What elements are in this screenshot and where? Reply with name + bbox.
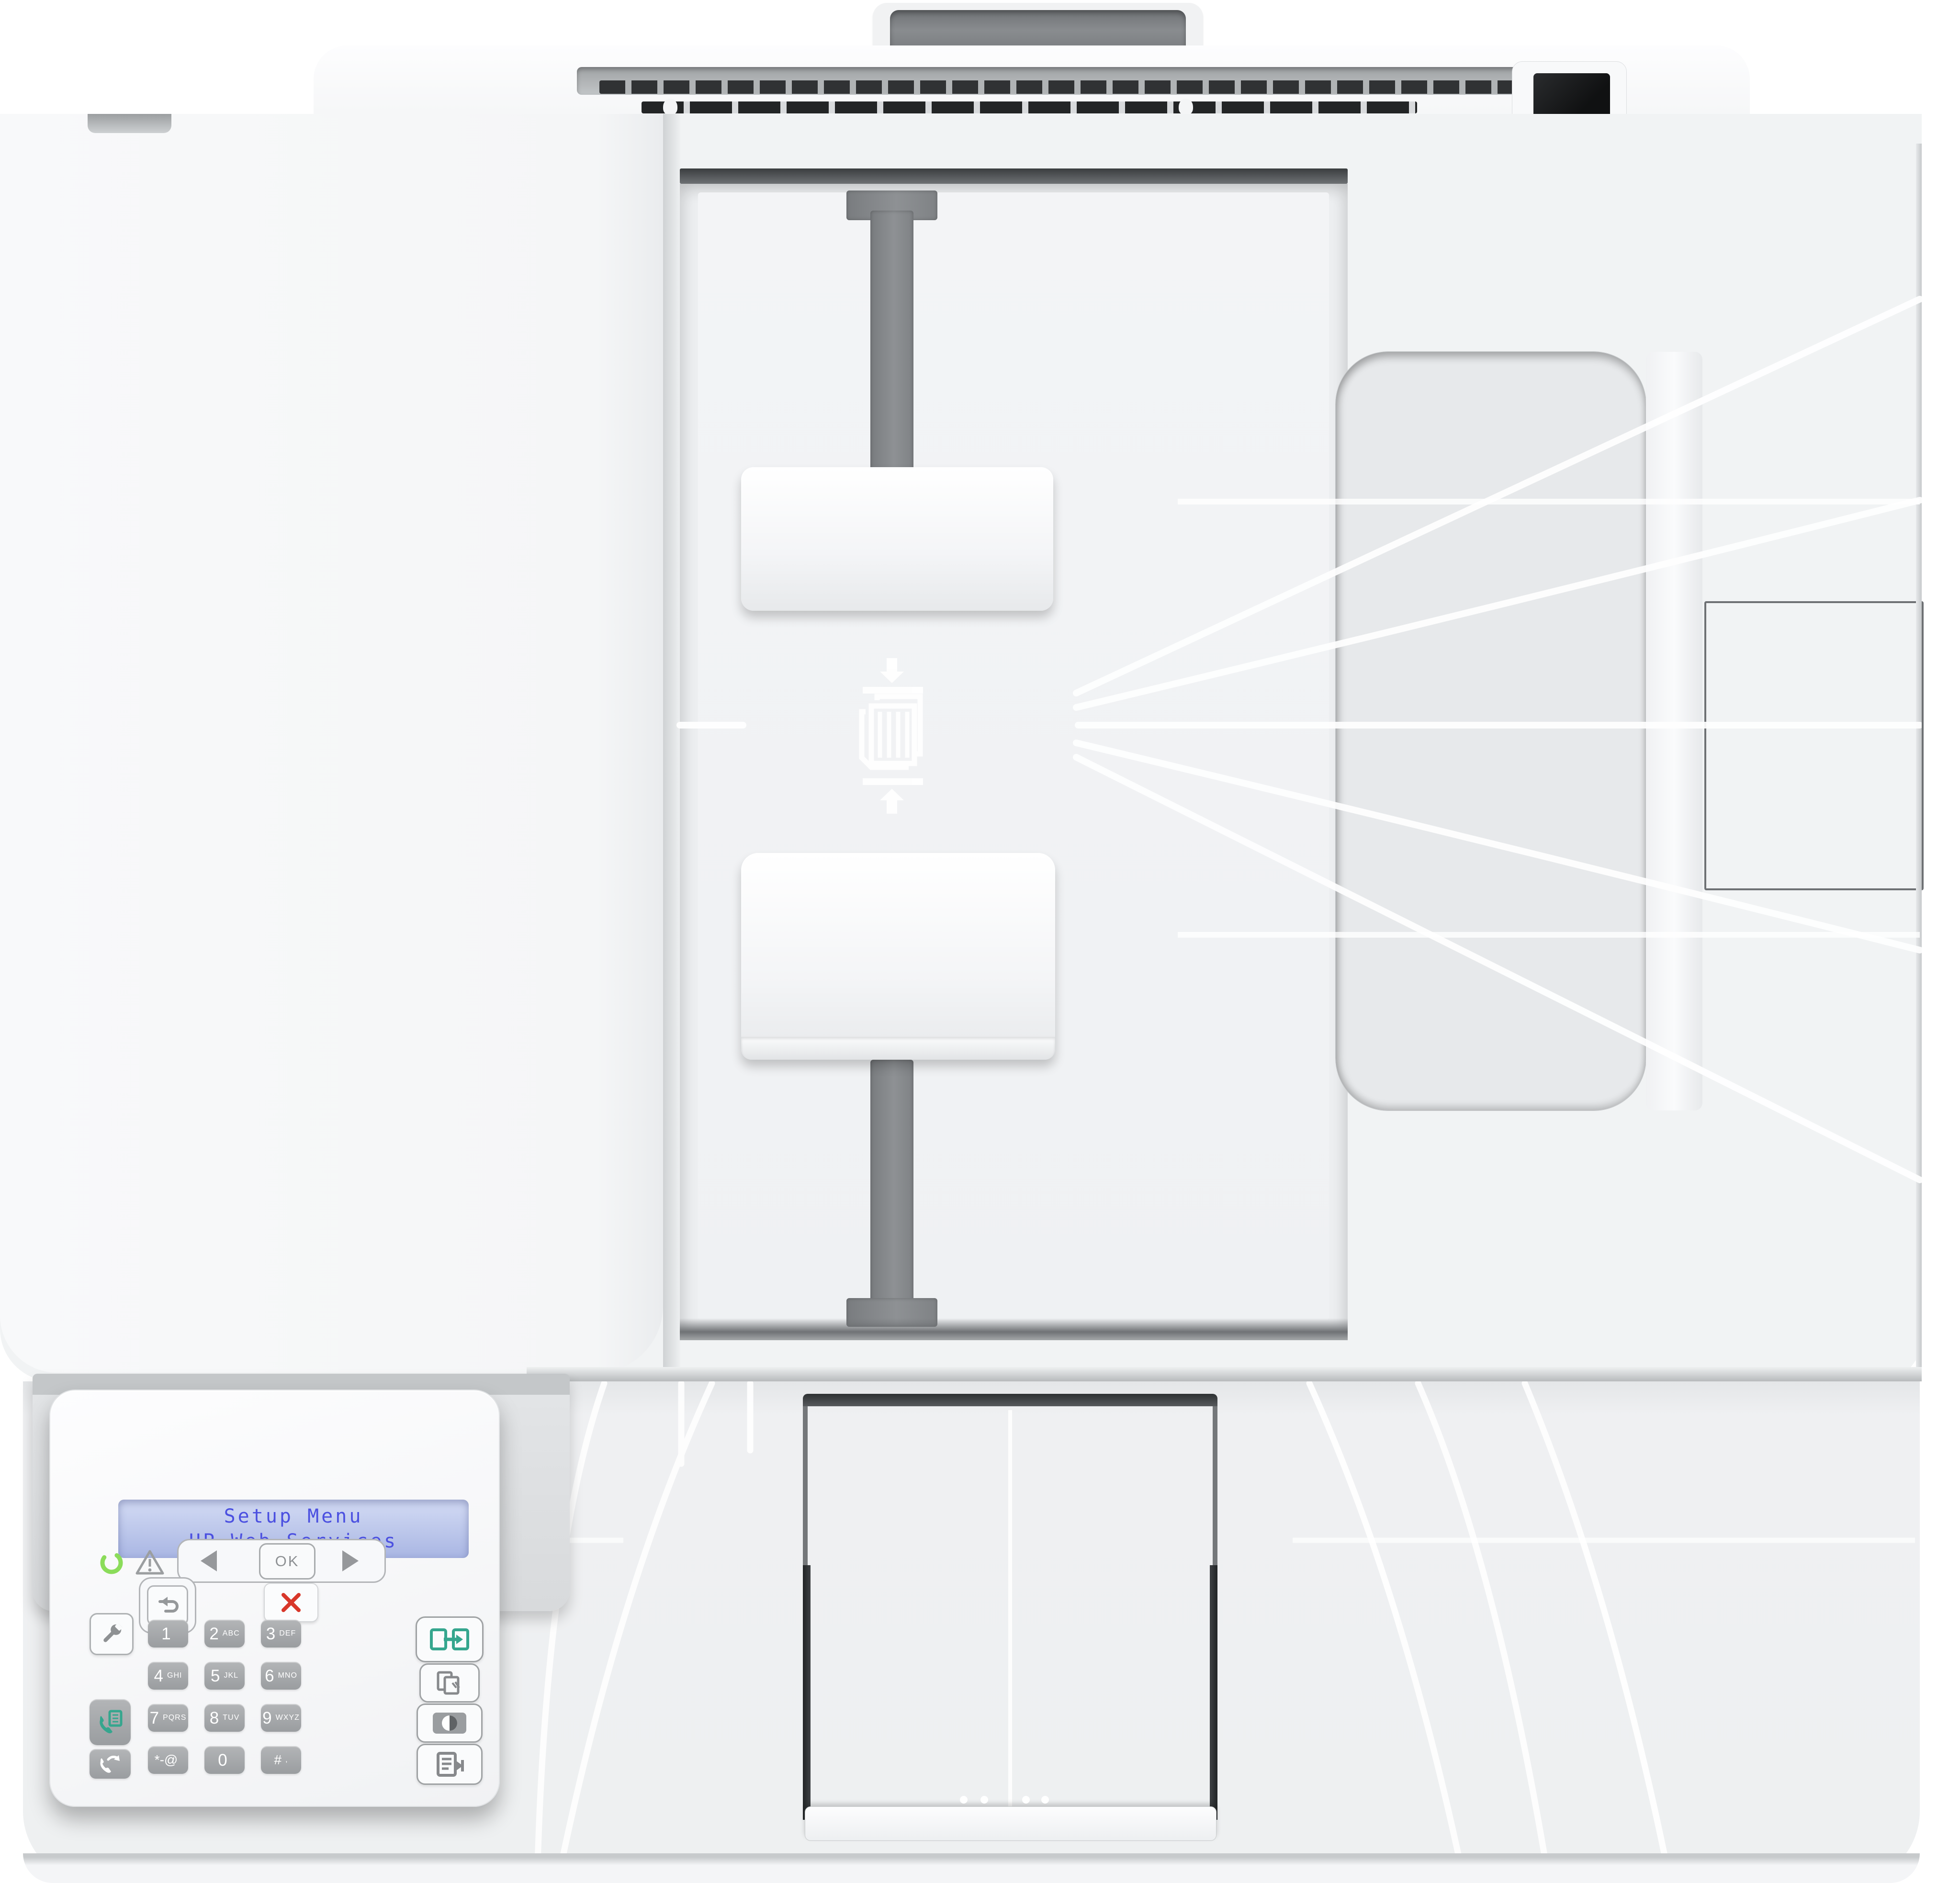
paper-stop-dot — [980, 1796, 988, 1804]
fax-icon — [96, 1708, 124, 1736]
copy-settings-button[interactable] — [417, 1744, 483, 1785]
copies-icon — [434, 1670, 465, 1695]
setup-button[interactable] — [90, 1613, 134, 1655]
deck-front-edge — [527, 1367, 1922, 1381]
printer-top-view: Setup Menu HP Web Services OK — [0, 0, 1960, 1883]
lid-grip-notch[interactable] — [88, 114, 171, 133]
redial-icon — [98, 1754, 123, 1774]
key-5[interactable]: 5JKL — [204, 1662, 245, 1690]
lcd-line1: Setup Menu — [224, 1505, 363, 1527]
duplex-copy-icon — [429, 1626, 470, 1653]
key-hash[interactable]: #, — [261, 1746, 301, 1774]
ok-label: OK — [275, 1553, 300, 1570]
ready-led — [98, 1549, 125, 1576]
key-2[interactable]: 2ABC — [204, 1620, 245, 1648]
paper-stop-center-seam — [1008, 1410, 1012, 1806]
flatbed-lid[interactable] — [0, 114, 663, 1373]
key-9[interactable]: 9WXYZ — [261, 1704, 301, 1732]
copy-settings-icon — [434, 1751, 465, 1777]
ok-button[interactable]: OK — [259, 1543, 315, 1580]
copies-button[interactable] — [419, 1663, 480, 1703]
key-1[interactable]: 1 — [148, 1620, 188, 1648]
control-panel: Setup Menu HP Web Services OK — [49, 1390, 500, 1807]
key-3[interactable]: 3DEF — [261, 1620, 301, 1648]
key-star[interactable]: *-@ — [148, 1746, 188, 1774]
key-6[interactable]: 6MNO — [261, 1662, 301, 1690]
arrow-right-button[interactable] — [342, 1550, 359, 1571]
key-4[interactable]: 4GHI — [148, 1662, 188, 1690]
key-8[interactable]: 8TUV — [204, 1704, 245, 1732]
paper-stop-rail — [1213, 1406, 1217, 1565]
paper-stop-rail — [803, 1565, 811, 1820]
contrast-icon — [431, 1711, 468, 1735]
two-sided-copy-button[interactable] — [416, 1616, 484, 1662]
setup-wrench-icon — [98, 1621, 125, 1648]
back-icon — [155, 1595, 180, 1616]
key-0[interactable]: 0 — [204, 1746, 245, 1774]
adf-lid-handle[interactable] — [873, 3, 1203, 47]
paper-stop-dot — [1041, 1796, 1049, 1804]
key-7[interactable]: 7PQRS — [148, 1704, 188, 1732]
deck-decor-lines — [670, 182, 1922, 1345]
vent-slots-row2 — [642, 101, 1417, 113]
output-paper-stop[interactable] — [803, 1394, 1217, 1879]
nav-cluster: OK — [177, 1539, 386, 1583]
adf-lid-handle-recess — [890, 10, 1186, 47]
paper-stop-flip-edge[interactable] — [805, 1806, 1217, 1841]
vent-slots-row1 — [599, 80, 1578, 94]
vent-divider-left — [663, 99, 677, 115]
rear-port — [1533, 73, 1610, 119]
fax-button[interactable] — [90, 1699, 131, 1745]
redial-button[interactable] — [90, 1749, 131, 1779]
warning-icon — [135, 1548, 165, 1576]
cancel-x-icon — [280, 1592, 302, 1614]
contrast-button[interactable] — [417, 1704, 483, 1743]
paper-stop-dot — [960, 1796, 968, 1804]
vent-divider-right — [1179, 99, 1193, 115]
arrow-left-button[interactable] — [201, 1550, 217, 1571]
cancel-button[interactable] — [264, 1583, 318, 1622]
paper-stop-top-edge — [803, 1394, 1217, 1406]
paper-stop-rail — [803, 1406, 808, 1565]
paper-stop-dot — [1022, 1796, 1030, 1804]
paper-stop-rail — [1210, 1565, 1217, 1820]
